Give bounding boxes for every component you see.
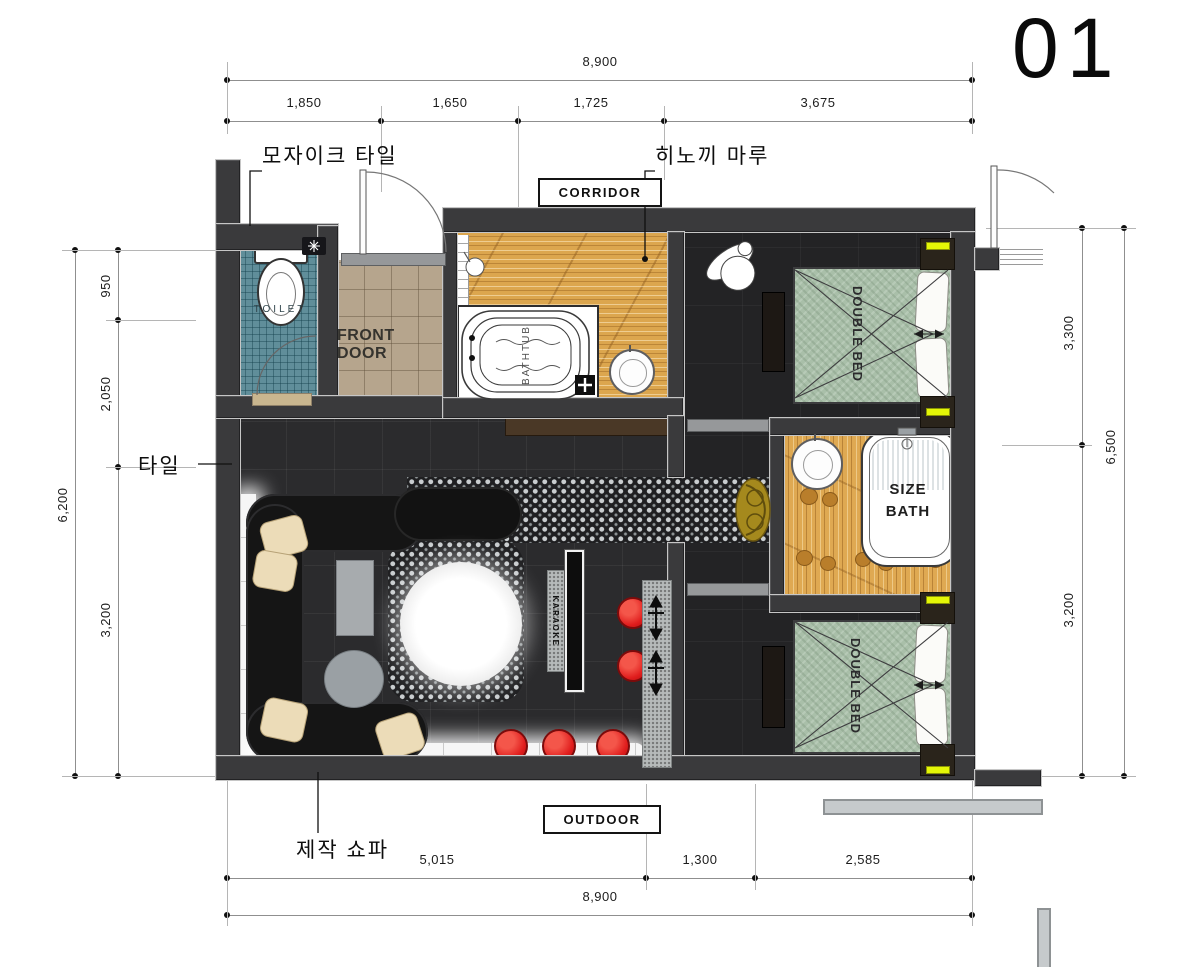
dim-ext bbox=[972, 768, 973, 926]
size-bath-label: SIZE BATH bbox=[866, 478, 950, 524]
entry-door-arc bbox=[366, 172, 446, 252]
floor-plan-canvas: 01 KARAOKE bbox=[0, 0, 1200, 967]
wall-left bbox=[216, 160, 240, 780]
wall-entry-bottom bbox=[216, 396, 448, 418]
dim-top-overall: 8,900 bbox=[560, 54, 640, 72]
exterior-door-arc bbox=[997, 170, 1054, 193]
dim-ext bbox=[227, 768, 228, 926]
dim-line-right-overall bbox=[1124, 228, 1125, 776]
wall-bottom-right-return bbox=[975, 770, 1041, 786]
wall-toilet-right bbox=[318, 226, 338, 398]
bedroom-lower-threshold bbox=[687, 583, 769, 596]
dim-line-left-segments bbox=[118, 250, 119, 776]
pillow bbox=[914, 337, 949, 399]
karaoke-screen bbox=[565, 550, 584, 692]
wall-bottom bbox=[216, 756, 975, 780]
pillow bbox=[914, 687, 949, 747]
dim-top-seg1: 1,850 bbox=[264, 95, 344, 113]
deck-knot bbox=[820, 556, 836, 571]
pillow bbox=[914, 271, 949, 333]
exterior-step-line bbox=[999, 249, 1043, 250]
curved-bench bbox=[394, 487, 522, 541]
annotation-custom-sofa: 제작 쇼파 bbox=[296, 834, 389, 864]
wall-top bbox=[443, 208, 975, 232]
dim-ext bbox=[972, 62, 973, 134]
dim-top-seg2: 1,650 bbox=[410, 95, 490, 113]
wall-right bbox=[951, 232, 975, 780]
dim-top-seg4: 3,675 bbox=[778, 95, 858, 113]
bedroom-lower-console bbox=[762, 646, 785, 728]
exterior-step-line bbox=[999, 259, 1043, 260]
toilet-threshold bbox=[252, 393, 312, 406]
dim-line-bottom-overall bbox=[227, 915, 972, 916]
deck-knot bbox=[796, 550, 813, 566]
dim-ext bbox=[62, 250, 218, 251]
corridor-sink bbox=[609, 349, 655, 395]
wall-top-right-pier bbox=[975, 248, 999, 270]
wall-corridor-left bbox=[443, 208, 457, 400]
dim-left-seg2: 2,050 bbox=[98, 354, 116, 434]
wall-living-top bbox=[443, 398, 683, 418]
outdoor-label-box: OUTDOOR bbox=[543, 805, 661, 834]
deck-knot bbox=[800, 488, 818, 505]
double-bed-upper-label: DOUBLE BED bbox=[849, 274, 867, 394]
bedside-light-accent bbox=[926, 766, 950, 774]
exterior-step-line bbox=[999, 264, 1043, 265]
dim-ext bbox=[1002, 445, 1092, 446]
side-table-rect bbox=[336, 560, 374, 636]
wall-corridor-bedroom bbox=[668, 232, 684, 416]
dim-bottom-seg1: 5,015 bbox=[397, 852, 477, 870]
deck-knot bbox=[822, 492, 838, 507]
bedroom-upper-threshold bbox=[687, 419, 769, 432]
round-light-table bbox=[400, 562, 522, 686]
side-table-round bbox=[324, 650, 384, 708]
dim-line-top-segments bbox=[227, 121, 972, 122]
entry-threshold bbox=[341, 253, 446, 266]
dim-left-seg1: 950 bbox=[98, 246, 116, 326]
bedside-light-accent bbox=[926, 596, 950, 604]
bedroom-upper-console bbox=[762, 292, 785, 372]
dim-bottom-overall: 8,900 bbox=[560, 889, 640, 907]
annotation-mosaic-tile: 모자이크 타일 bbox=[262, 140, 398, 170]
sofa-cushion bbox=[251, 549, 299, 594]
karaoke-label: KARAOKE bbox=[549, 586, 563, 656]
dim-ext bbox=[62, 776, 218, 777]
outdoor-bench bbox=[823, 799, 1043, 815]
front-door-label: FRONT DOOR bbox=[337, 334, 443, 356]
size-bath-sink bbox=[791, 438, 843, 490]
entry-door-leaf bbox=[360, 170, 366, 254]
dim-left-overall: 6,200 bbox=[55, 465, 73, 545]
wall-hall-left-upper bbox=[668, 416, 684, 477]
dim-bottom-seg2: 1,300 bbox=[660, 852, 740, 870]
dim-right-seg1: 3,300 bbox=[1061, 293, 1079, 373]
exterior-door-leaf bbox=[991, 166, 997, 248]
corridor-label-box: CORRIDOR bbox=[538, 178, 662, 207]
dim-bottom-seg3: 2,585 bbox=[823, 852, 903, 870]
dim-line-left-overall bbox=[75, 250, 76, 776]
dim-ext bbox=[986, 228, 1136, 229]
annotation-hinoki-floor: 히노끼 마루 bbox=[655, 140, 769, 170]
dim-top-seg3: 1,725 bbox=[551, 95, 631, 113]
bedside-light-accent bbox=[926, 408, 950, 416]
dim-ext bbox=[106, 320, 196, 321]
pillow bbox=[914, 624, 949, 684]
dim-right-overall: 6,500 bbox=[1103, 407, 1121, 487]
double-bed-lower-label: DOUBLE BED bbox=[847, 626, 865, 746]
bedside-light-accent bbox=[926, 242, 950, 250]
dim-ext bbox=[646, 784, 647, 890]
bathtub-label: BATHTUB bbox=[517, 315, 535, 395]
sliding-door-track bbox=[642, 580, 672, 768]
dim-ext bbox=[227, 62, 228, 134]
toilet-label: TOILET bbox=[248, 302, 312, 316]
dim-line-right-segments bbox=[1082, 228, 1083, 776]
exterior-step-line bbox=[999, 254, 1043, 255]
dim-line-bottom-segments bbox=[227, 878, 972, 879]
wall-bath-left bbox=[770, 432, 784, 598]
dim-right-seg2: 3,200 bbox=[1061, 570, 1079, 650]
sheet-number: 01 bbox=[1012, 0, 1192, 100]
dim-ext bbox=[755, 784, 756, 890]
dim-line-top-overall bbox=[227, 80, 972, 81]
dim-left-seg3: 3,200 bbox=[98, 580, 116, 660]
annotation-tile: 타일 bbox=[138, 450, 181, 480]
outdoor-post bbox=[1037, 908, 1051, 967]
